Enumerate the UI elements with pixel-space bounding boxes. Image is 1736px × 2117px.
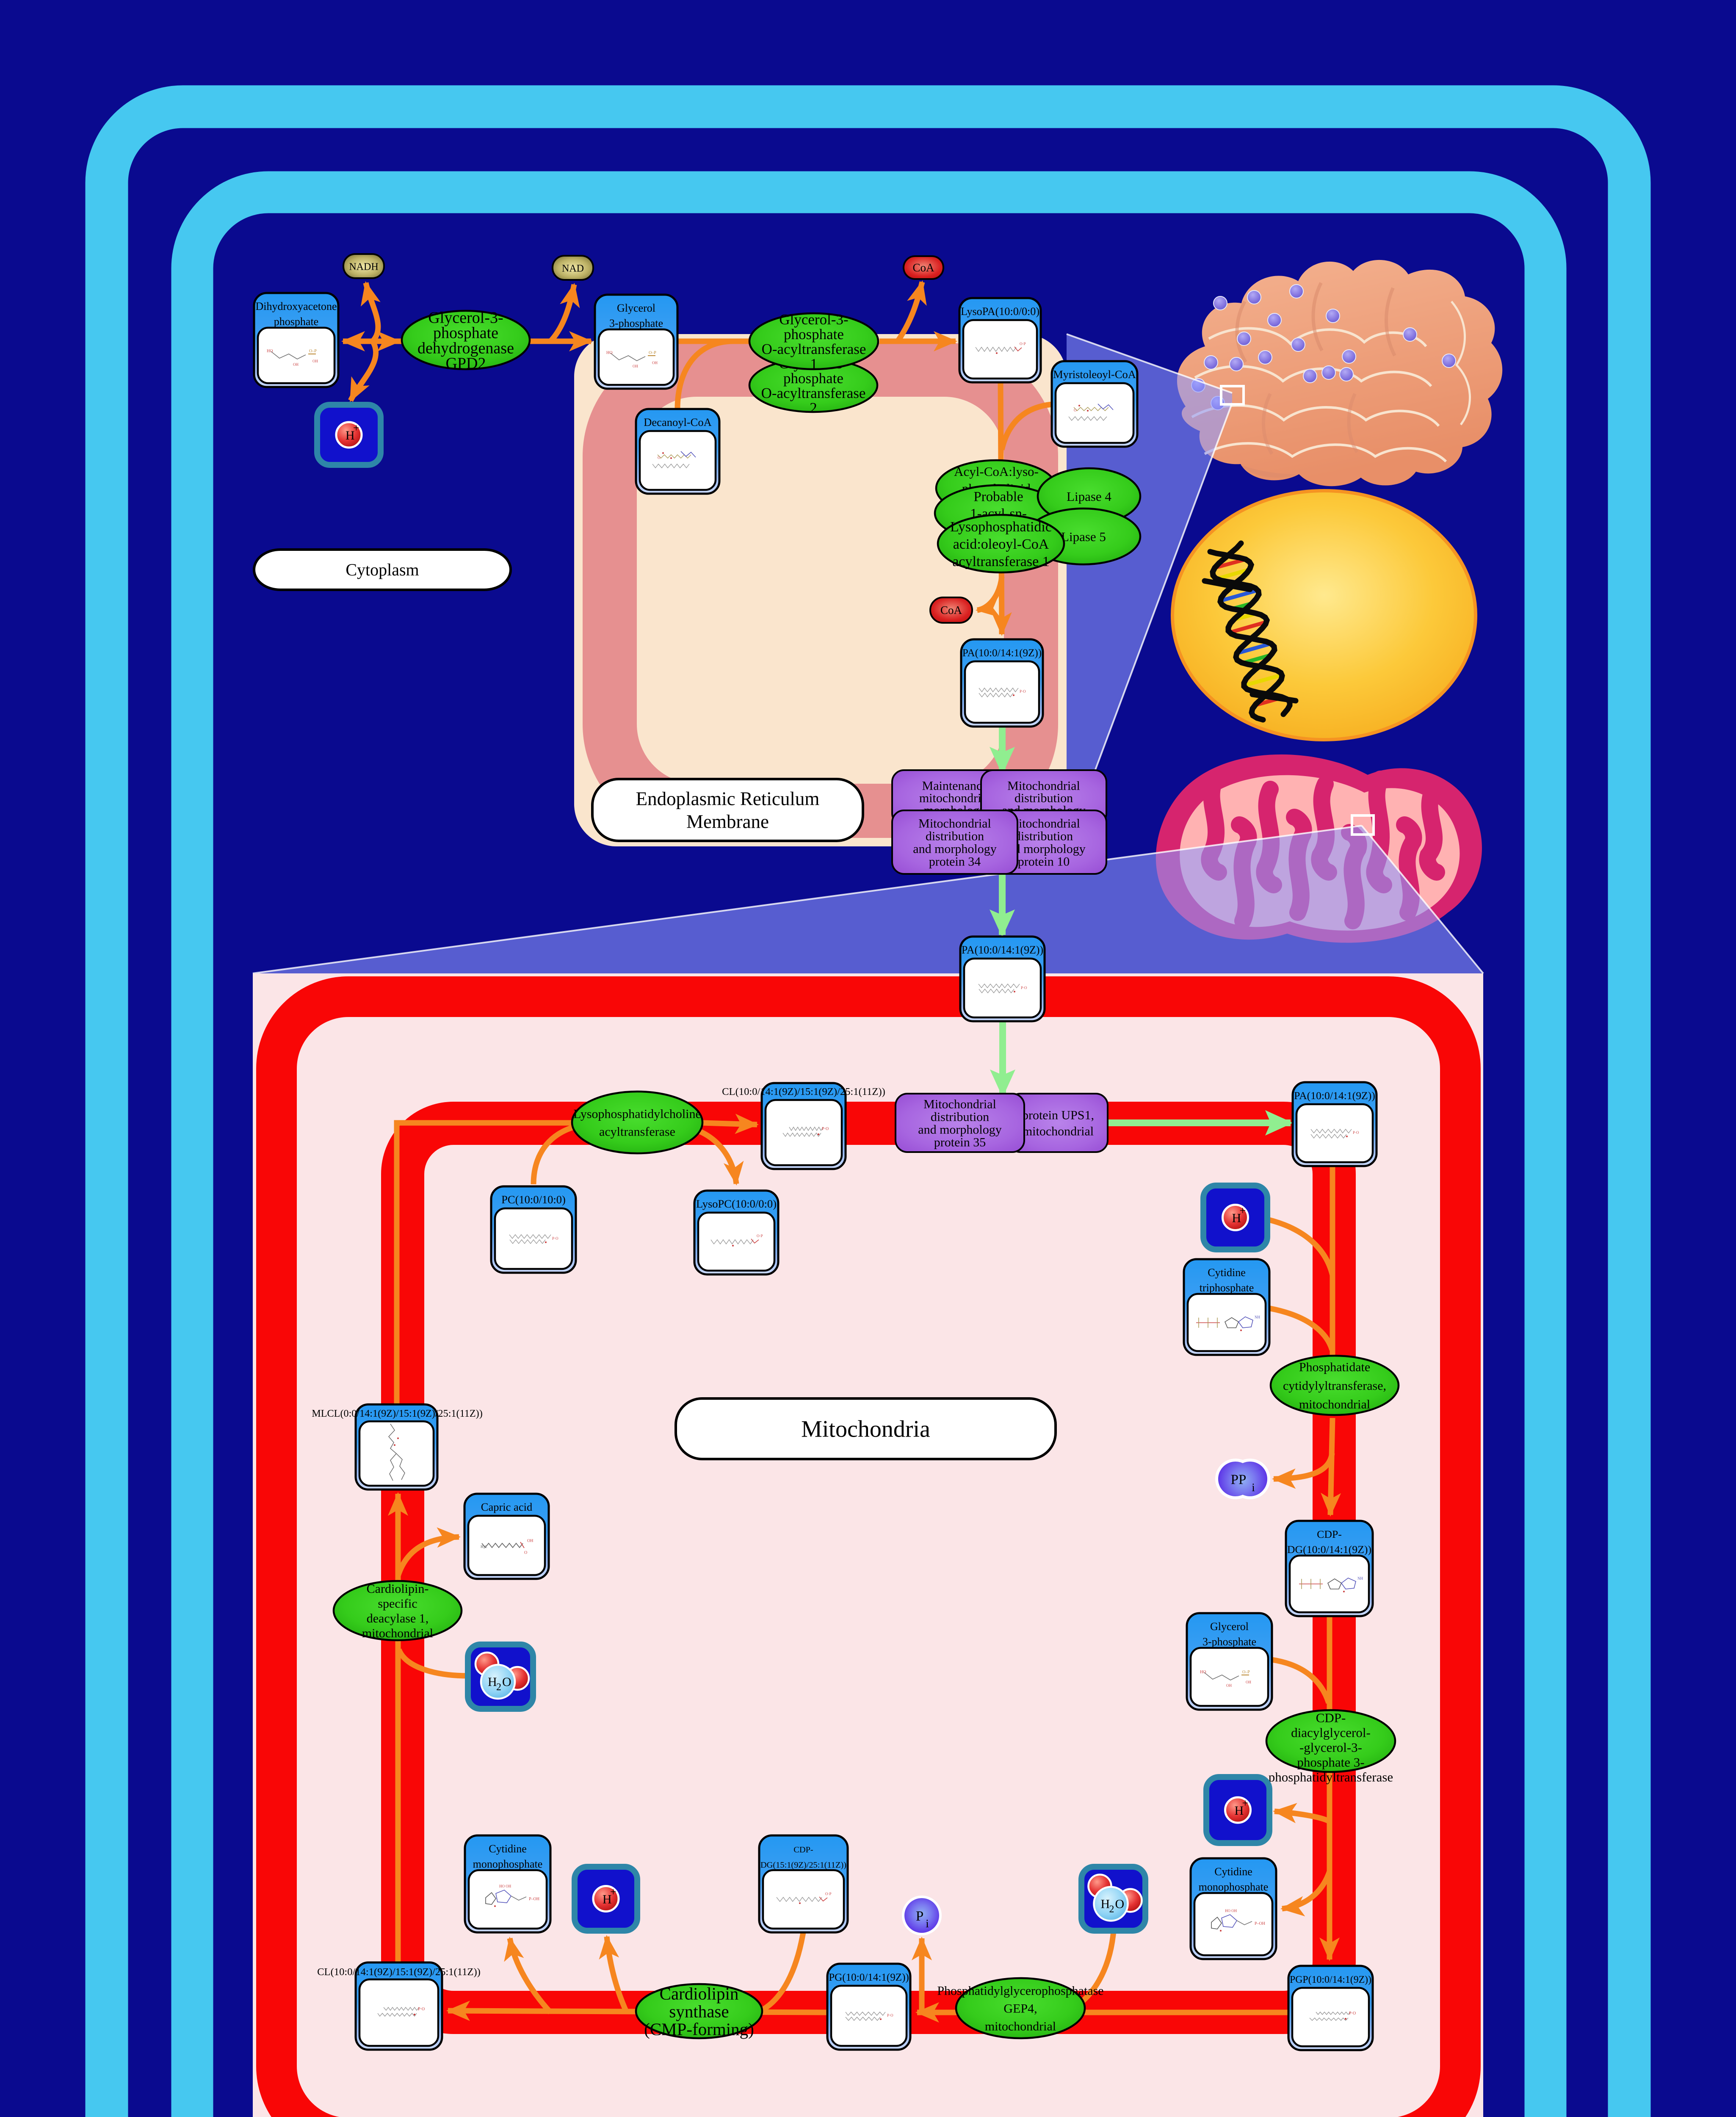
svg-text:PA(10:0/14:1(9Z)): PA(10:0/14:1(9Z))	[962, 944, 1043, 956]
svg-text:O: O	[502, 1675, 511, 1689]
svg-text:O: O	[1074, 408, 1077, 412]
svg-text:DG(15:1(9Z)/25:1(11Z)): DG(15:1(9Z)/25:1(11Z))	[760, 1860, 846, 1870]
svg-text:P·O: P·O	[552, 1236, 558, 1241]
svg-text:(CMP-forming): (CMP-forming)	[644, 2019, 754, 2039]
svg-text:P·O: P·O	[1349, 2011, 1356, 2016]
svg-text:Lysophosphatidic: Lysophosphatidic	[950, 519, 1052, 535]
svg-text:Endoplasmic Reticulum: Endoplasmic Reticulum	[636, 788, 820, 809]
svg-text:mitochondrial: mitochondrial	[985, 2020, 1056, 2034]
svg-text:HO OH: HO OH	[1225, 1909, 1237, 1913]
svg-text:P·O: P·O	[1020, 689, 1026, 694]
svg-text:Mitochondrial: Mitochondrial	[918, 817, 991, 831]
svg-text:Probable: Probable	[973, 489, 1023, 505]
svg-text:O·P: O·P	[825, 1892, 832, 1896]
svg-text:HO: HO	[606, 351, 612, 355]
svg-text:OH: OH	[633, 364, 638, 368]
svg-text:phosphate: phosphate	[783, 370, 843, 387]
svg-text:OH: OH	[652, 361, 658, 365]
svg-text:O·P: O·P	[757, 1234, 763, 1238]
svg-text:DG(10:0/14:1(9Z)): DG(10:0/14:1(9Z))	[1287, 1543, 1371, 1556]
svg-text:O: O	[658, 456, 661, 460]
svg-text:PA(10:0/14:1(9Z)): PA(10:0/14:1(9Z))	[962, 647, 1042, 659]
svg-text:acyltransferase 1: acyltransferase 1	[952, 554, 1049, 569]
svg-text:phosphate: phosphate	[274, 315, 318, 328]
svg-text:HO OH: HO OH	[499, 1884, 511, 1888]
svg-text:cytidylyltransferase,: cytidylyltransferase,	[1283, 1379, 1386, 1393]
svg-text:Lipase 5: Lipase 5	[1061, 529, 1106, 544]
svg-text:P·O: P·O	[418, 2007, 425, 2012]
svg-text:Membrane: Membrane	[686, 811, 769, 832]
svg-text:HO: HO	[267, 349, 273, 354]
svg-text:synthase: synthase	[669, 2001, 729, 2021]
svg-text:PP: PP	[1231, 1472, 1247, 1487]
svg-text:P–OH: P–OH	[529, 1897, 539, 1901]
svg-text:triphosphate: triphosphate	[1200, 1282, 1254, 1294]
svg-text:O-acyltransferase: O-acyltransferase	[761, 385, 866, 401]
svg-text:protein 10: protein 10	[1018, 855, 1070, 869]
svg-text:protein UPS1,: protein UPS1,	[1022, 1108, 1094, 1122]
svg-text:Glycerol: Glycerol	[1210, 1620, 1249, 1633]
svg-text:CDP-: CDP-	[1316, 1711, 1346, 1725]
svg-text:phosphate: phosphate	[784, 326, 844, 343]
svg-text:3-phosphate: 3-phosphate	[1202, 1636, 1256, 1648]
svg-text:OH: OH	[1226, 1683, 1232, 1688]
svg-text:P–OH: P–OH	[1255, 1921, 1265, 1926]
svg-text:O–P: O–P	[309, 349, 317, 354]
svg-text:+: +	[1242, 1797, 1249, 1809]
svg-text:Glycerol-3-: Glycerol-3-	[779, 311, 848, 328]
svg-text:distribution: distribution	[931, 1110, 989, 1124]
svg-text:CoA: CoA	[912, 261, 934, 274]
svg-text:P: P	[916, 1909, 923, 1924]
svg-text:O–P: O–P	[1242, 1670, 1250, 1675]
svg-text:NAD: NAD	[562, 263, 584, 274]
svg-text:i: i	[1252, 1481, 1255, 1494]
svg-text:phosphatidyltransferase: phosphatidyltransferase	[1269, 1770, 1393, 1785]
svg-text:diacylglycerol-: diacylglycerol-	[1291, 1725, 1371, 1740]
svg-text:Decanoyl-CoA: Decanoyl-CoA	[644, 416, 711, 428]
svg-text:Phosphatidylglycerophosphatase: Phosphatidylglycerophosphatase	[937, 1984, 1103, 1998]
svg-text:Lipase 4: Lipase 4	[1067, 489, 1111, 504]
svg-text:Mitochondria: Mitochondria	[801, 1416, 930, 1443]
svg-text:Acyl-CoA:lyso-: Acyl-CoA:lyso-	[954, 464, 1039, 479]
svg-text:P·O: P·O	[1353, 1130, 1359, 1135]
svg-text:Dihydroxyacetone: Dihydroxyacetone	[255, 300, 337, 312]
svg-text:distribution: distribution	[1015, 829, 1073, 843]
svg-text:mitochondrial: mitochondrial	[362, 1626, 433, 1640]
svg-text:Cytidine: Cytidine	[1208, 1266, 1246, 1279]
svg-text:PGP(10:0/14:1(9Z)): PGP(10:0/14:1(9Z))	[1290, 1974, 1371, 1985]
svg-text:MLCL(0:0/14:1(9Z)/15:1(9Z)/25:: MLCL(0:0/14:1(9Z)/15:1(9Z)/25:1(11Z))	[312, 1408, 483, 1419]
svg-text:i: i	[926, 1917, 929, 1930]
svg-text:phosphate 3-: phosphate 3-	[1297, 1755, 1364, 1770]
svg-text:monophosphate: monophosphate	[1199, 1881, 1269, 1893]
svg-text:protein 34: protein 34	[929, 855, 981, 869]
svg-text:OH: OH	[527, 1539, 533, 1543]
svg-text:Myristoleoyl-CoA: Myristoleoyl-CoA	[1053, 368, 1136, 381]
svg-text:NH: NH	[1357, 1576, 1363, 1581]
svg-text:NH: NH	[1255, 1315, 1260, 1319]
svg-text:GEP4,: GEP4,	[1003, 2002, 1037, 2016]
svg-text:and morphology: and morphology	[913, 842, 996, 856]
svg-text:NADH: NADH	[349, 262, 378, 273]
svg-text:2: 2	[810, 400, 817, 416]
svg-text:mitochondrial: mitochondrial	[1023, 1125, 1094, 1139]
svg-text:Capric acid: Capric acid	[481, 1501, 532, 1513]
svg-text:CL(10:0/14:1(9Z)/15:1(9Z)/25:1: CL(10:0/14:1(9Z)/15:1(9Z)/25:1(11Z))	[317, 1966, 481, 1978]
svg-text:2: 2	[1109, 1904, 1114, 1915]
svg-text:HO: HO	[1200, 1670, 1206, 1675]
svg-text:O: O	[1115, 1897, 1125, 1911]
svg-text:CDP-: CDP-	[1317, 1528, 1342, 1540]
svg-text:H: H	[488, 1675, 497, 1689]
svg-text:O–P: O–P	[649, 351, 656, 355]
svg-text:protein 35: protein 35	[934, 1136, 986, 1150]
svg-text:acid:oleoyl-CoA: acid:oleoyl-CoA	[953, 536, 1049, 552]
svg-text:GPD2: GPD2	[445, 354, 486, 372]
svg-text:mitochondrial: mitochondrial	[1299, 1398, 1370, 1412]
svg-text:1: 1	[810, 356, 818, 372]
svg-text:P·O: P·O	[887, 2013, 893, 2018]
svg-text:H: H	[1101, 1897, 1110, 1911]
svg-text:O: O	[524, 1550, 527, 1555]
svg-text:LysoPC(10:0/0:0): LysoPC(10:0/0:0)	[696, 1197, 777, 1210]
svg-text:H₃C: H₃C	[481, 1545, 487, 1549]
svg-text:CoA: CoA	[940, 604, 962, 616]
svg-text:OH: OH	[1246, 1680, 1251, 1684]
svg-text:2: 2	[496, 1682, 501, 1693]
svg-text:P·O: P·O	[822, 1127, 829, 1131]
svg-text:P·O: P·O	[1021, 986, 1027, 990]
svg-text:monophosphate: monophosphate	[473, 1858, 543, 1870]
svg-text:Cytidine: Cytidine	[1214, 1866, 1252, 1878]
svg-text:+: +	[1240, 1205, 1246, 1217]
svg-text:OH: OH	[293, 362, 299, 367]
svg-text:Cytidine: Cytidine	[489, 1843, 527, 1855]
svg-text:O-acyltransferase: O-acyltransferase	[762, 341, 866, 357]
svg-text:3-phosphate: 3-phosphate	[609, 317, 663, 329]
svg-text:and morphology: and morphology	[918, 1123, 1001, 1137]
svg-text:+: +	[353, 422, 359, 434]
svg-text:Mitochondrial: Mitochondrial	[923, 1097, 996, 1111]
svg-text:Cardiolipin: Cardiolipin	[660, 1984, 739, 2003]
svg-text:Cardiolipin-: Cardiolipin-	[367, 1582, 429, 1596]
svg-text:Lysophosphatidylcholine: Lysophosphatidylcholine	[573, 1107, 701, 1121]
svg-text:+: +	[610, 1886, 616, 1898]
svg-text:Glycerol: Glycerol	[617, 302, 655, 314]
svg-text:Phosphatidate: Phosphatidate	[1299, 1360, 1370, 1374]
svg-text:OH: OH	[312, 359, 318, 363]
svg-text:acyltransferase: acyltransferase	[599, 1125, 675, 1139]
svg-text:CL(10:0/14:1(9Z)/15:1(9Z)/25:1: CL(10:0/14:1(9Z)/15:1(9Z)/25:1(11Z))	[722, 1086, 885, 1097]
svg-text:PG(10:0/14:1(9Z)): PG(10:0/14:1(9Z))	[829, 1972, 909, 1983]
svg-text:O·P: O·P	[1020, 342, 1026, 346]
svg-text:CDP-: CDP-	[793, 1845, 813, 1854]
svg-text:specific: specific	[378, 1597, 417, 1611]
svg-text:PA(10:0/14:1(9Z)): PA(10:0/14:1(9Z))	[1294, 1089, 1375, 1102]
svg-text:-glycerol-3-: -glycerol-3-	[1299, 1740, 1362, 1755]
svg-text:PC(10:0/10:0): PC(10:0/10:0)	[501, 1193, 566, 1206]
svg-text:LysoPA(10:0/0:0): LysoPA(10:0/0:0)	[961, 305, 1039, 318]
svg-text:distribution: distribution	[926, 829, 984, 843]
svg-text:deacylase 1,: deacylase 1,	[367, 1611, 429, 1625]
svg-text:Cytoplasm: Cytoplasm	[346, 560, 419, 579]
